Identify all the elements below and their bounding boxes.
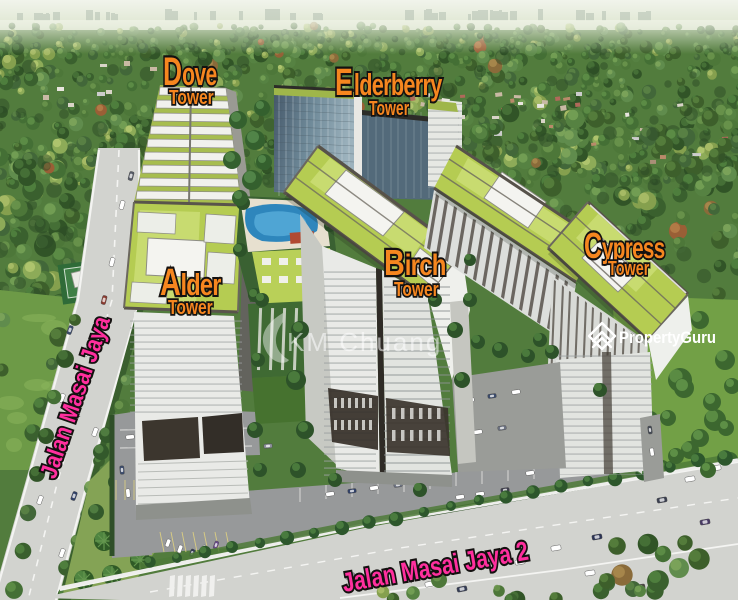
svg-text:KM Chuang: KM Chuang: [287, 327, 442, 357]
svg-text:E: E: [335, 60, 352, 103]
svg-text:PropertyGuru: PropertyGuru: [619, 328, 716, 347]
svg-text:Tower: Tower: [369, 96, 409, 119]
svg-text:irch: irch: [405, 247, 446, 281]
svg-text:Tower: Tower: [394, 278, 439, 300]
svg-text:C: C: [584, 225, 602, 266]
svg-text:B: B: [384, 242, 404, 283]
svg-text:Tower: Tower: [169, 86, 214, 108]
svg-text:Tower: Tower: [168, 296, 213, 318]
svg-text:Tower: Tower: [608, 257, 649, 280]
